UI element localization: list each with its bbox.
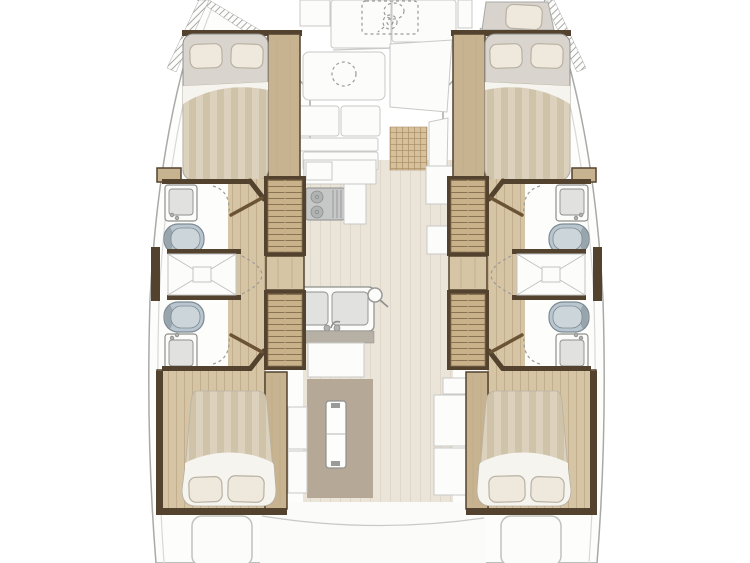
foredeck-locker <box>458 0 472 28</box>
stern-steps <box>192 516 252 563</box>
sofa-cushion <box>297 106 339 136</box>
pillow <box>505 4 542 30</box>
foredeck-locker <box>300 0 330 26</box>
bench-seat <box>288 407 307 449</box>
pillow <box>190 43 223 68</box>
stern-bulkhead <box>156 508 287 515</box>
dinette-table <box>326 401 346 468</box>
side-panel <box>429 118 448 170</box>
aft-cabin-wall <box>156 371 163 511</box>
stair-landing <box>266 256 304 290</box>
aft-cabin <box>156 371 287 515</box>
bench-seat <box>288 451 307 493</box>
galley-cabinet <box>308 343 364 377</box>
catamaran-floor-plan <box>0 0 750 563</box>
shower-drain <box>193 267 211 282</box>
aft-cockpit-floor <box>260 502 486 563</box>
foredeck-locker <box>331 0 391 48</box>
toilet-icon <box>164 302 204 332</box>
woven-deck-mat <box>390 127 427 170</box>
pillow <box>231 43 264 68</box>
forward-seat-panel <box>390 40 452 112</box>
sofa-cushion <box>341 106 380 136</box>
floor-plan-canvas <box>0 0 750 563</box>
galley-counter-side <box>344 184 366 224</box>
companionway-stairs <box>264 176 306 370</box>
bench-seat <box>443 378 467 394</box>
outboard-wall <box>151 247 160 301</box>
aft-double-bed <box>182 391 276 506</box>
shower-wall <box>167 249 241 254</box>
forward-double-bed <box>183 34 268 180</box>
galley-counter-box <box>306 162 332 180</box>
wardrobe-panel <box>268 34 300 178</box>
bathroom-wall <box>162 179 250 184</box>
bathroom-wall <box>162 366 250 371</box>
pillow <box>189 476 223 502</box>
hand-basin-icon <box>165 185 197 221</box>
pillow <box>228 476 265 503</box>
forward-table <box>303 52 385 100</box>
stove-cooktop-icon <box>306 188 344 220</box>
hand-basin-icon <box>165 333 197 370</box>
shower-wall <box>167 295 241 300</box>
starboard-forepeak-berth <box>482 2 554 30</box>
sofa-base <box>299 138 378 151</box>
